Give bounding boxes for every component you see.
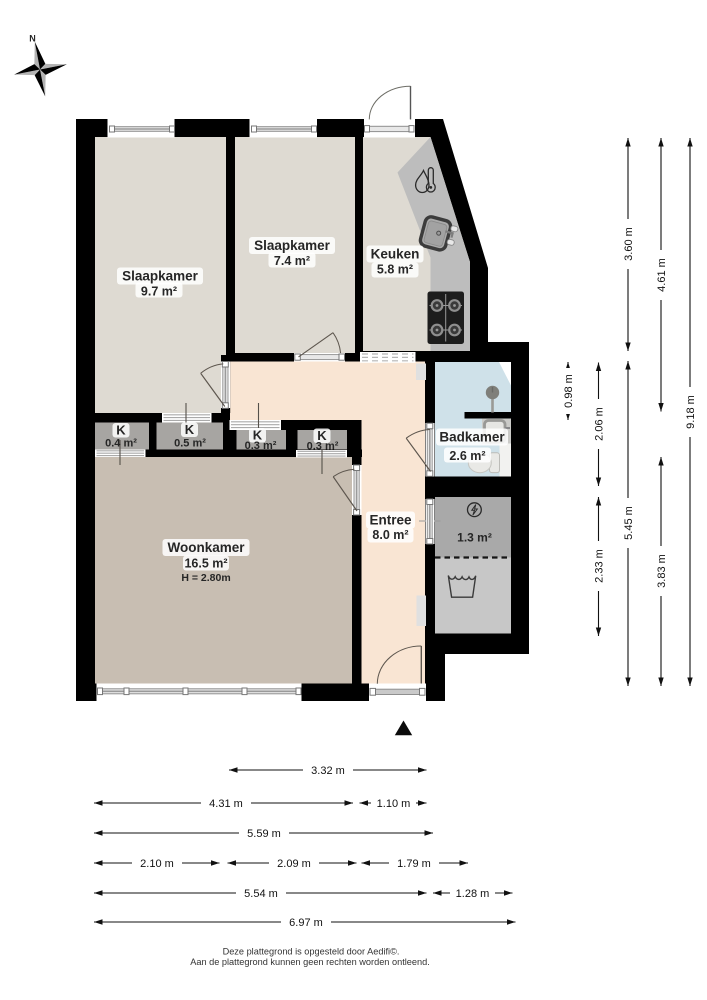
svg-text:3.32 m: 3.32 m (311, 765, 345, 777)
svg-text:0.3 m²: 0.3 m² (245, 440, 277, 452)
svg-text:0.5 m²: 0.5 m² (174, 438, 206, 450)
svg-text:4.31 m: 4.31 m (209, 798, 243, 810)
svg-text:6.97 m: 6.97 m (289, 917, 323, 929)
svg-text:16.5 m²: 16.5 m² (184, 557, 227, 571)
svg-text:2.10 m: 2.10 m (140, 858, 174, 870)
svg-text:Aan de plattegrond kunnen geen: Aan de plattegrond kunnen geen rechten w… (190, 957, 430, 967)
svg-text:1.10 m: 1.10 m (377, 798, 411, 810)
svg-text:2.09 m: 2.09 m (277, 858, 311, 870)
svg-text:Entree: Entree (369, 513, 412, 528)
svg-text:2.33 m: 2.33 m (594, 549, 606, 583)
svg-text:4.61 m: 4.61 m (656, 258, 668, 292)
svg-text:K: K (185, 422, 195, 437)
svg-text:5.54 m: 5.54 m (244, 888, 278, 900)
svg-text:2.6 m²: 2.6 m² (449, 449, 485, 463)
svg-text:1.3 m²: 1.3 m² (457, 531, 492, 545)
svg-text:5.8 m²: 5.8 m² (377, 263, 413, 277)
svg-text:3.83 m: 3.83 m (656, 554, 668, 588)
svg-text:Woonkamer: Woonkamer (167, 540, 245, 555)
svg-text:Badkamer: Badkamer (439, 430, 505, 445)
svg-text:Keuken: Keuken (371, 247, 420, 262)
svg-text:1.28 m: 1.28 m (456, 888, 490, 900)
svg-text:9.7 m²: 9.7 m² (141, 285, 177, 299)
svg-text:Slaapkamer: Slaapkamer (122, 269, 199, 284)
svg-text:Deze plattegrond is opgesteld: Deze plattegrond is opgesteld door Aedif… (223, 947, 400, 957)
svg-text:K: K (116, 423, 126, 438)
svg-text:0.98 m: 0.98 m (563, 374, 575, 408)
svg-text:1.79 m: 1.79 m (397, 858, 431, 870)
svg-text:3.60 m: 3.60 m (623, 227, 635, 261)
svg-text:0.4 m²: 0.4 m² (105, 438, 137, 450)
svg-text:H = 2.80m: H = 2.80m (181, 572, 230, 584)
svg-text:9.18 m: 9.18 m (685, 395, 697, 429)
svg-text:5.59 m: 5.59 m (247, 828, 281, 840)
svg-text:7.4 m²: 7.4 m² (274, 254, 310, 268)
svg-text:Slaapkamer: Slaapkamer (254, 238, 331, 253)
svg-text:8.0 m²: 8.0 m² (372, 528, 408, 542)
svg-text:5.45 m: 5.45 m (623, 506, 635, 540)
svg-text:N: N (29, 34, 36, 44)
svg-text:0.3 m²: 0.3 m² (307, 441, 339, 453)
svg-text:2.06 m: 2.06 m (594, 407, 606, 441)
